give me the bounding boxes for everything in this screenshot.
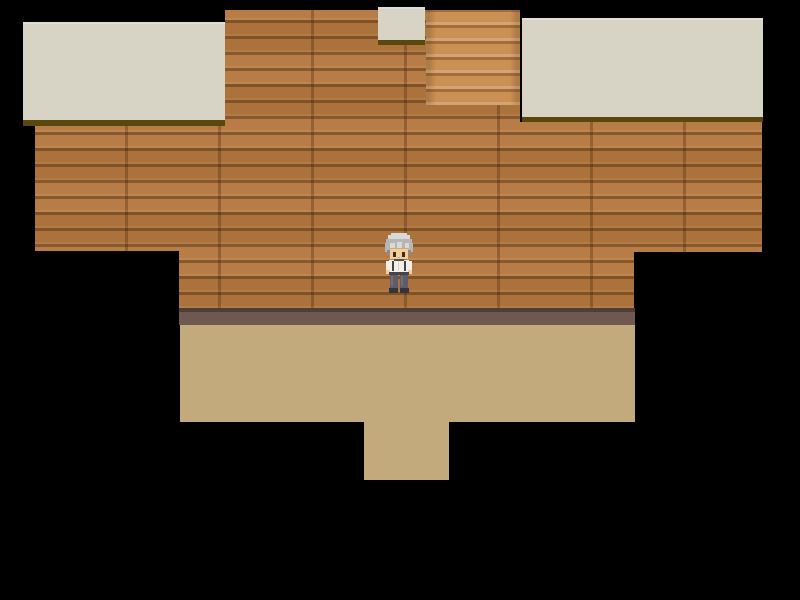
wall-base-strip: [179, 312, 635, 325]
suspender-pixel: [392, 261, 394, 271]
leg-pixel: [391, 276, 393, 286]
leg-pixel: [401, 276, 403, 286]
collar-pixel: [394, 259, 404, 261]
arm-pixel: [408, 261, 412, 271]
roof-small: [378, 7, 425, 40]
arm-pixel: [386, 261, 390, 271]
roof-right: [522, 18, 763, 117]
stairs: [426, 10, 520, 105]
mouth-pixel: [398, 257, 400, 258]
eye-pixel: [393, 252, 396, 257]
belt-pixel: [389, 272, 409, 275]
hair-pixel: [405, 243, 409, 248]
game-viewport[interactable]: [0, 0, 800, 600]
eye-pixel: [402, 252, 405, 257]
shoe-pixel: [389, 288, 398, 293]
hair-pixel: [390, 243, 395, 248]
hair-pixel: [397, 242, 402, 248]
floor: [180, 325, 635, 480]
player-character[interactable]: [384, 233, 414, 295]
placket-pixel: [398, 261, 399, 271]
suspender-pixel: [404, 261, 406, 271]
roof-small-edge: [378, 40, 425, 45]
roof-right-edge: [522, 117, 763, 122]
roof-left-edge: [23, 120, 225, 126]
shoe-pixel: [400, 288, 409, 293]
roof-left: [23, 22, 225, 120]
